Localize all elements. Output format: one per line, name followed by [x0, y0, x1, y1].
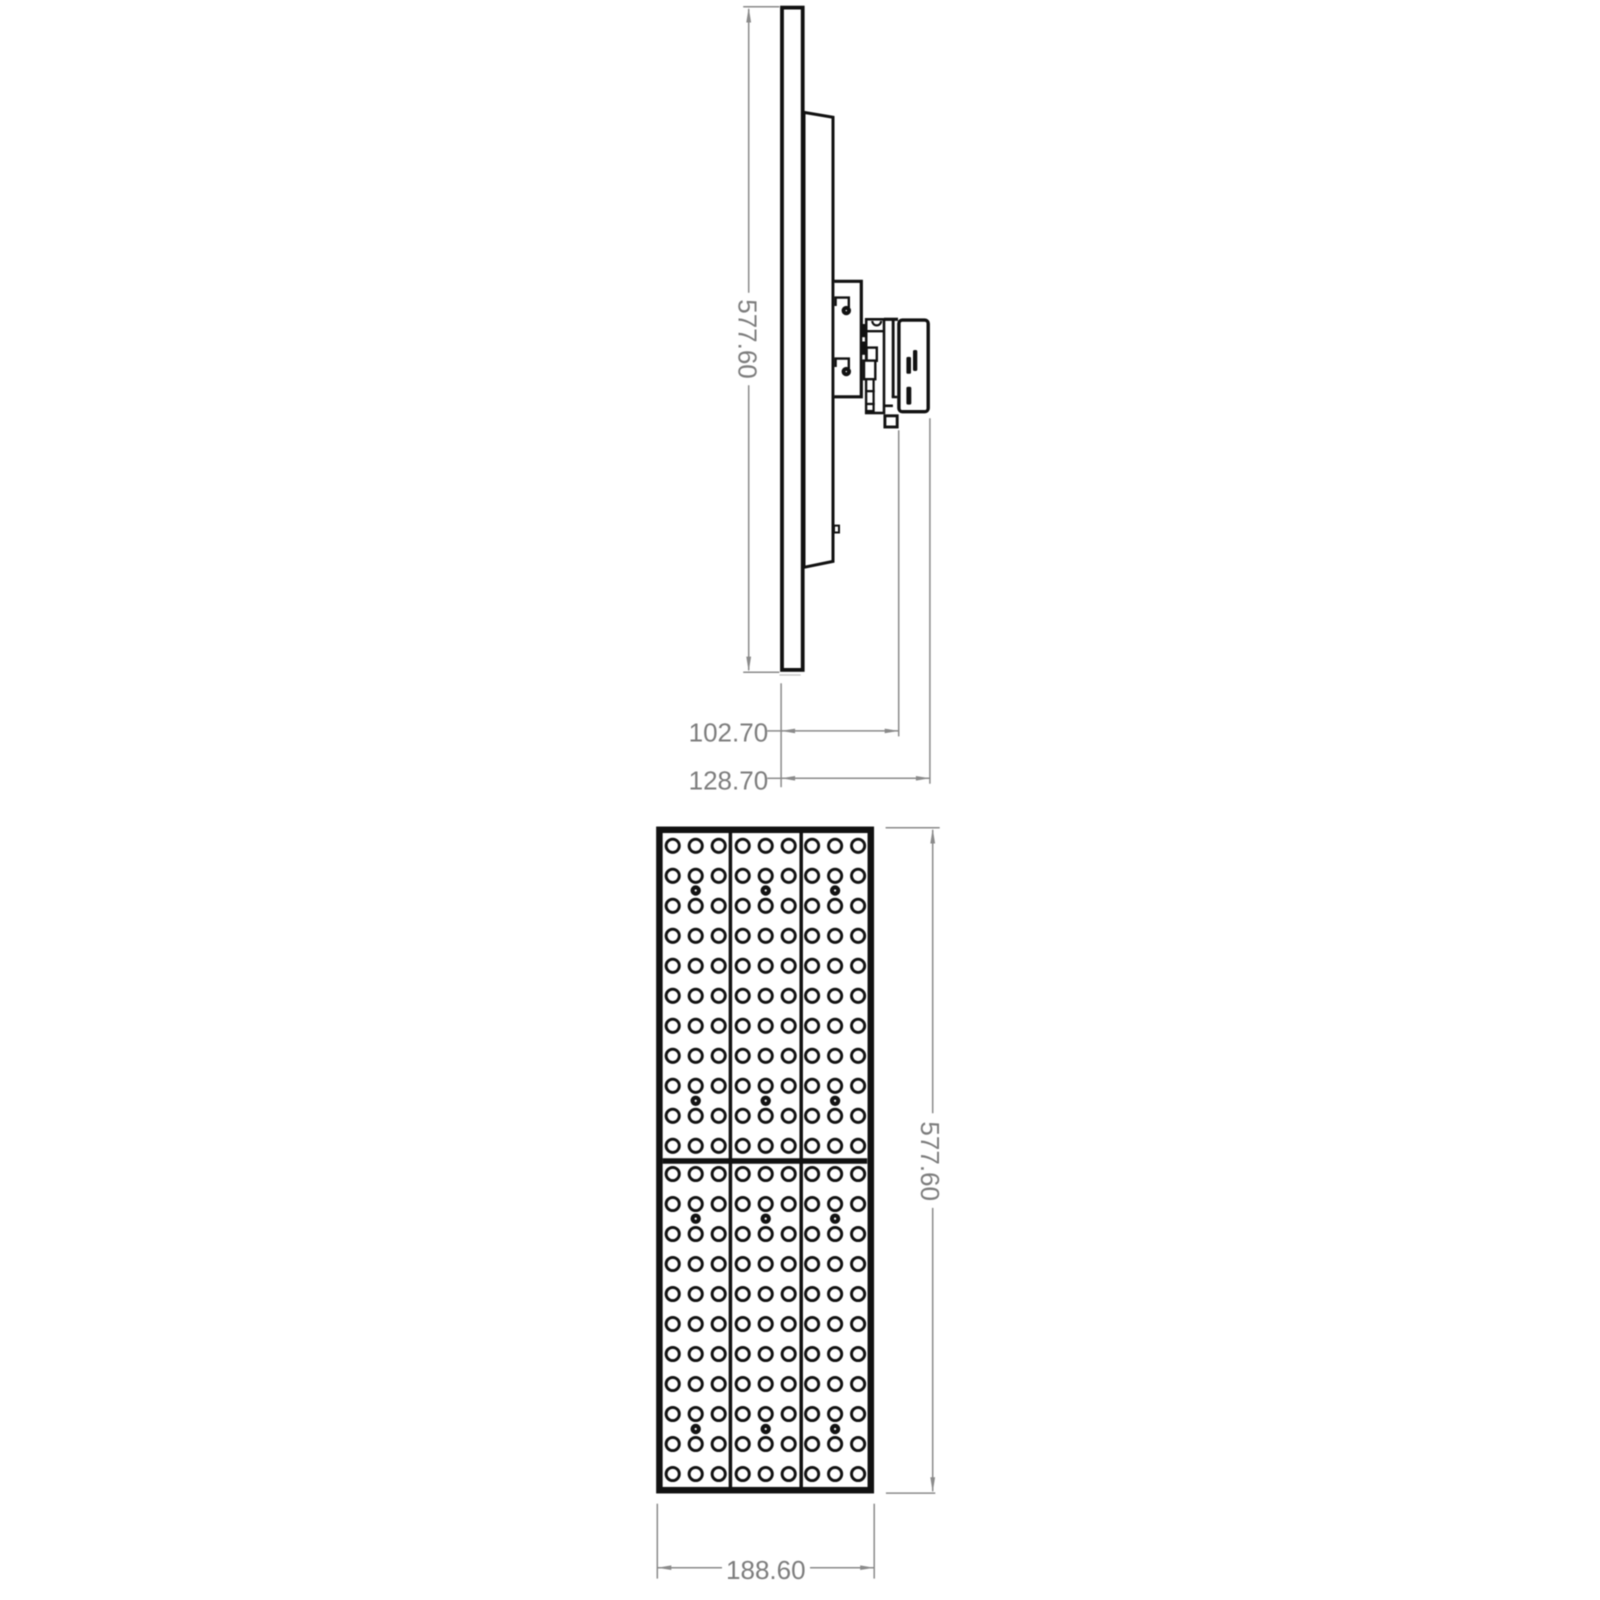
svg-text:102.70: 102.70 — [689, 718, 769, 748]
svg-text:577.60: 577.60 — [915, 1121, 945, 1201]
svg-text:128.70: 128.70 — [689, 765, 769, 795]
svg-text:577.60: 577.60 — [733, 299, 763, 379]
svg-text:188.60: 188.60 — [726, 1555, 806, 1585]
